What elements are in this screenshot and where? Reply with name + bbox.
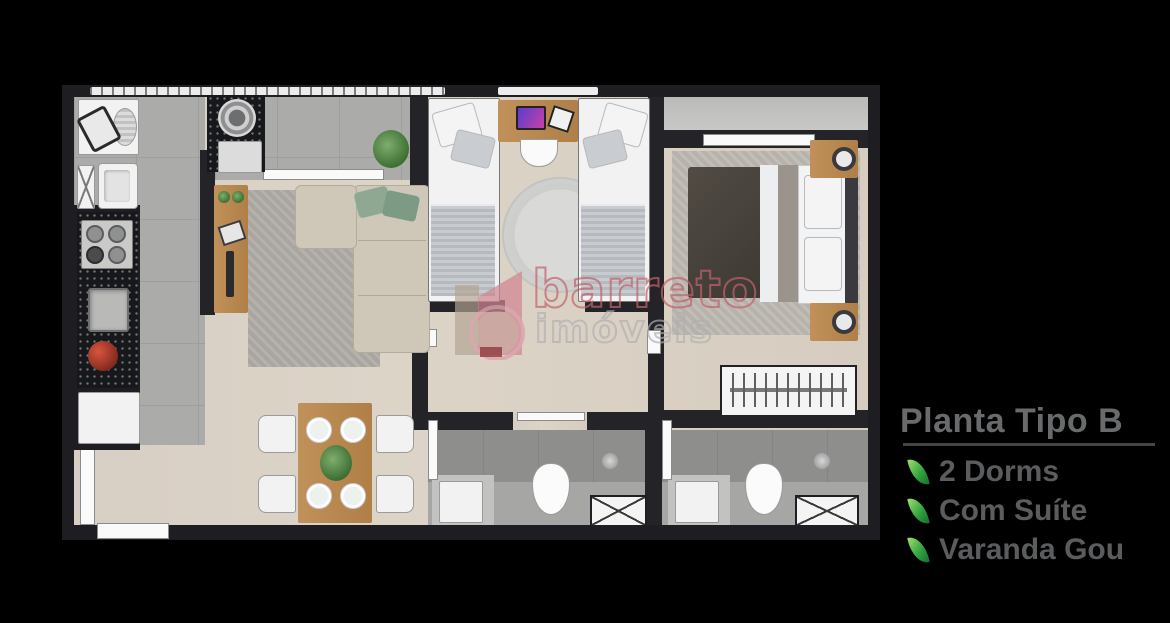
plant [373,130,409,168]
sofa-seam [358,240,426,241]
top-window-railing [90,87,445,95]
shower-head [814,453,830,469]
burner [108,225,126,243]
leaf-icon [907,535,929,566]
outer-wall-bottom [62,525,880,540]
bathroom-sink [675,481,719,523]
bathroom-divider-wall [645,412,662,525]
kitchen-living-wall [200,150,215,315]
bed-pillow [450,129,497,170]
leaf-icon [907,496,929,527]
tablet [516,106,546,130]
shower-box [590,495,647,527]
headboard [845,163,858,304]
place-setting [306,483,332,509]
kitchen-sink [88,288,129,332]
tv-console [214,185,248,313]
sofa-chaise [295,185,357,249]
burner [86,225,104,243]
watermark: barreto imóveis [450,240,780,370]
burner [108,246,126,264]
fruit-bowl [88,341,118,371]
console-tray [217,220,246,246]
plan-title: Planta Tipo B [900,402,1170,441]
feature-item-varanda: Varanda Gou [910,533,1170,567]
hangers [732,373,845,407]
dining-table [298,403,372,523]
grill [218,99,256,137]
dining-chair [376,415,414,453]
sofa-seam [358,295,426,296]
feature-label: 2 Dorms [939,455,1059,489]
laundry-cabinet [77,165,95,209]
bed-pillow [804,175,842,229]
bedroom2-top-shelf [498,87,598,95]
notebook [547,105,575,133]
watermark-line2: imóveis [535,310,714,348]
wardrobe-with-hangers [720,365,857,417]
feature-label: Varanda Gou [939,533,1124,567]
feature-item-suite: Com Suíte [910,494,1170,528]
varanda-sliding-door [263,169,384,180]
desk [498,100,578,142]
suite-balcony-sliding-door [703,134,815,146]
console-plant [218,191,230,203]
dining-chair [258,415,296,453]
stove [81,220,133,269]
table-lamp [832,310,856,334]
nightstand [810,140,858,178]
dining-chair [376,475,414,513]
grill-cabinet [218,141,262,173]
bathroom-door-leaf [428,420,438,480]
entry-door [80,448,95,525]
centerpiece-plant [320,445,352,481]
laundry-tank [98,163,138,209]
nightstand [810,303,858,341]
screenshot-root: { "background_color": "#000000", "panel"… [0,0,1170,623]
place-setting [340,417,366,443]
entry-opening [97,523,169,539]
leaf-icon [907,457,929,488]
bathroom-top-wall-b [587,412,648,430]
shower-box [795,495,859,527]
table-lamp [832,147,856,171]
outer-wall-right [868,85,880,540]
feature-item-dorms: 2 Dorms [910,455,1170,489]
bed-pillow [804,237,842,291]
suite-balcony-floor [664,95,868,133]
outer-wall-left [62,85,74,540]
dining-chair [258,475,296,513]
tank-basin [104,170,130,202]
bed-throw [778,165,800,302]
feature-label: Com Suíte [939,494,1087,528]
bathroom-sink [439,481,483,523]
title-underline [903,443,1155,446]
console-plant [232,191,244,203]
barreto-imoveis-logo [450,255,530,360]
bathroom-door-leaf [662,420,672,480]
bed-pillow [582,129,629,170]
fridge [78,392,140,444]
shower-head [602,453,618,469]
burner [86,246,104,264]
place-setting [340,483,366,509]
place-setting [306,417,332,443]
social-bathroom-door [517,412,585,421]
tv-bracket [226,251,234,297]
washing-machine [78,99,139,155]
washer-lid [76,105,122,154]
